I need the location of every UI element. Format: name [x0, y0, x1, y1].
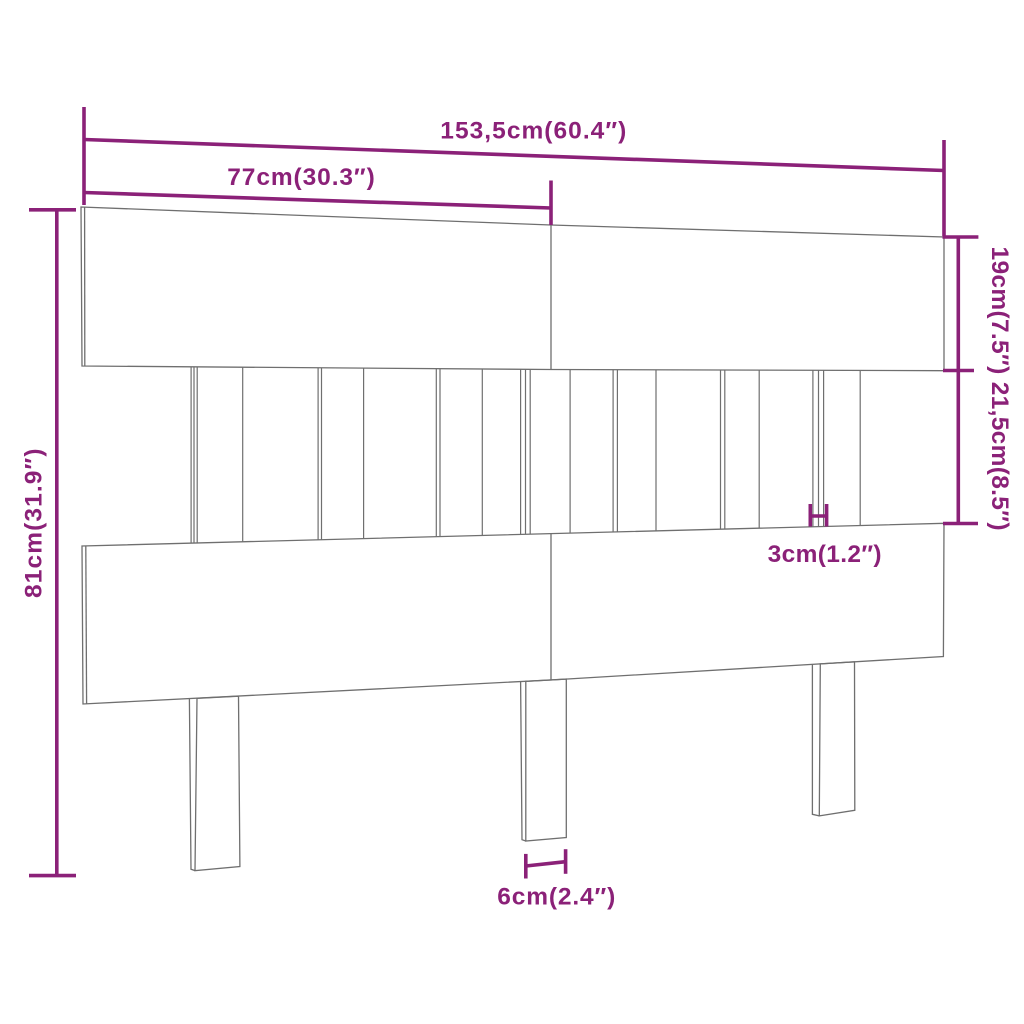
svg-text:3cm(1.2″): 3cm(1.2″): [768, 541, 882, 568]
svg-text:77cm(30.3″): 77cm(30.3″): [227, 164, 375, 191]
svg-text:81cm(31.9″): 81cm(31.9″): [21, 448, 48, 598]
svg-text:153,5cm(60.4″): 153,5cm(60.4″): [440, 118, 626, 145]
svg-text:6cm(2.4″): 6cm(2.4″): [497, 884, 615, 911]
svg-text:19cm(7.5″) 21,5cm(8.5″): 19cm(7.5″) 21,5cm(8.5″): [986, 247, 1013, 531]
